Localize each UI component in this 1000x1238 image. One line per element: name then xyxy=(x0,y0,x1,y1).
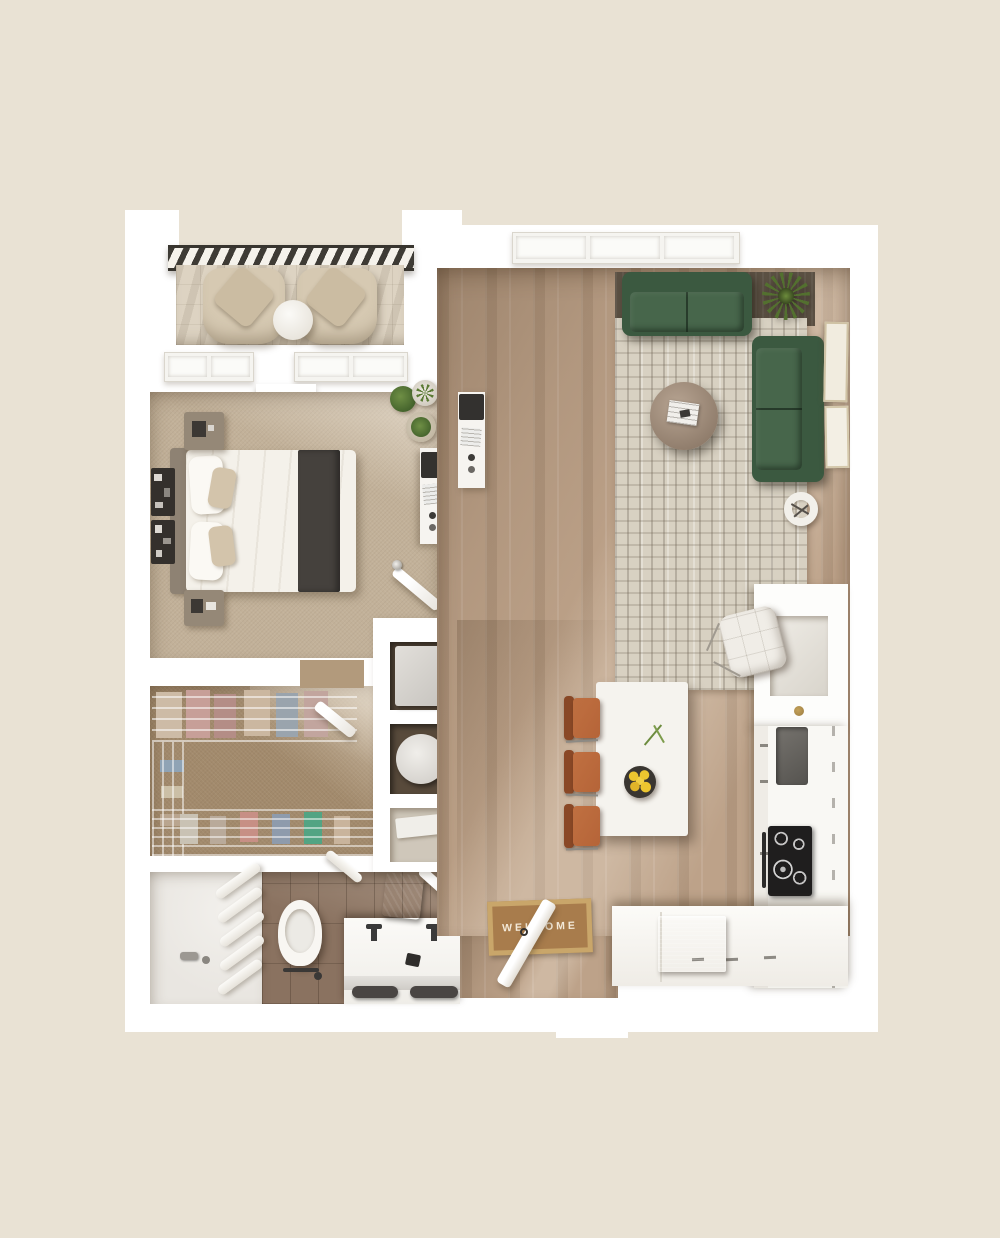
nightstand xyxy=(184,590,224,626)
floor-plant xyxy=(762,272,810,320)
chair-pillow xyxy=(212,265,277,330)
wall-top-left-cap xyxy=(125,210,179,336)
bedroom-window-left xyxy=(164,352,254,382)
drawer-handle xyxy=(764,956,776,959)
window-pane xyxy=(516,236,586,259)
leaning-frame xyxy=(824,406,849,468)
desk-mug xyxy=(429,512,436,519)
fruit-bowl xyxy=(624,766,656,798)
coffee-table xyxy=(650,382,718,450)
window-pane xyxy=(211,356,250,377)
wall-bottom-step xyxy=(556,1030,628,1038)
dishwasher-stainless xyxy=(658,916,726,972)
toilet-seat xyxy=(285,909,315,953)
desk-mug xyxy=(429,524,436,531)
bedroom-window-right xyxy=(294,352,408,382)
shower-drain xyxy=(202,956,210,964)
bedroom-door-knob xyxy=(392,560,402,570)
plant-leaves xyxy=(416,384,434,402)
vanity-faucet xyxy=(371,928,377,941)
desk-monitor xyxy=(459,394,484,420)
kitchen-sink-dark xyxy=(776,727,808,785)
oven-handle xyxy=(762,832,766,888)
drawer-handle xyxy=(760,744,768,747)
sofa-seat-cushions xyxy=(756,348,802,470)
toilet-valve xyxy=(314,972,322,980)
stool-seat xyxy=(573,752,600,792)
window-pane xyxy=(298,356,349,377)
drawer-handle xyxy=(760,780,768,783)
entry-door-handle xyxy=(520,928,528,936)
balcony-side-table xyxy=(273,300,313,340)
chair-pillow xyxy=(304,265,369,330)
lounge-chair xyxy=(203,268,285,344)
drawer-handle xyxy=(726,958,738,961)
wall-art-collage xyxy=(151,520,175,564)
cooktop xyxy=(768,826,812,896)
towel-rail-towel xyxy=(410,986,458,998)
toilet-pipe xyxy=(283,968,319,972)
plant-leaves xyxy=(411,417,431,437)
closet-threshold xyxy=(300,660,364,688)
ring-side-table xyxy=(784,492,818,526)
sofa-seat-cushions xyxy=(630,292,744,332)
nightstand xyxy=(184,412,224,450)
bar-stool xyxy=(564,802,602,850)
sofa-right xyxy=(752,336,824,482)
toilet xyxy=(278,900,322,966)
bed-runner-blanket xyxy=(298,450,340,592)
lounge-chair xyxy=(297,268,377,344)
desk-mug xyxy=(468,466,475,473)
floor-plan-canvas: WELCOME xyxy=(0,0,1000,1238)
shower-valve xyxy=(180,952,198,960)
potted-plant xyxy=(412,380,438,406)
vanity-soap-dish xyxy=(405,953,421,968)
bed-accent-pillow xyxy=(208,525,237,568)
window-pane xyxy=(590,236,660,259)
sofa-top xyxy=(622,272,752,336)
stool-seat xyxy=(573,806,600,846)
vanity-green-towels xyxy=(382,872,424,920)
window-pane xyxy=(664,236,734,259)
living-desk xyxy=(458,392,485,488)
desk-papers xyxy=(460,427,481,447)
window-pane xyxy=(353,356,404,377)
plant-center-pot xyxy=(778,288,794,304)
kitchen-island xyxy=(596,682,688,836)
living-room-windows xyxy=(512,232,740,264)
closet-shoe-rack xyxy=(152,806,384,856)
bar-stool xyxy=(564,694,602,742)
leaning-frame xyxy=(823,322,848,402)
wall-art-collage xyxy=(151,468,175,516)
towel-rail-towel xyxy=(352,986,398,998)
desk-mug xyxy=(468,454,475,461)
window-pane xyxy=(168,356,207,377)
bar-stool xyxy=(564,748,602,796)
shower xyxy=(150,872,262,1004)
potted-plant xyxy=(406,412,436,442)
brass-faucet xyxy=(794,706,804,716)
kitchen-counter-bottom xyxy=(612,906,848,986)
stool-seat xyxy=(573,698,600,738)
